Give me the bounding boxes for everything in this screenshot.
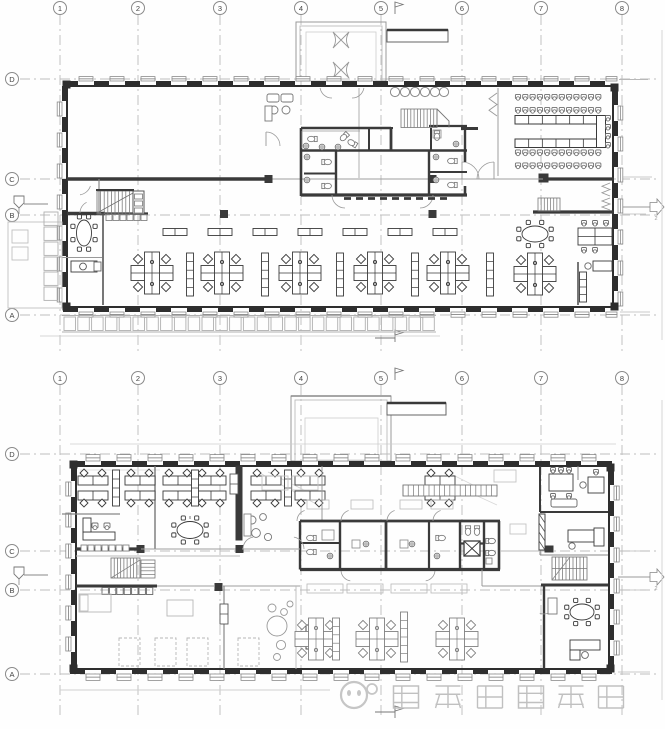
svg-text:6: 6 [460, 4, 464, 13]
svg-text:5: 5 [379, 4, 383, 13]
svg-text:C: C [9, 547, 15, 556]
svg-text:B: B [9, 586, 14, 595]
svg-text:2: 2 [654, 586, 657, 592]
svg-text:6: 6 [460, 374, 464, 383]
svg-text:5: 5 [379, 374, 383, 383]
svg-text:1: 1 [58, 4, 62, 13]
svg-text:8: 8 [620, 4, 624, 13]
svg-text:2: 2 [136, 374, 140, 383]
svg-text:7: 7 [539, 374, 543, 383]
svg-text:1: 1 [58, 374, 62, 383]
svg-text:2: 2 [654, 216, 657, 222]
svg-text:A: A [9, 670, 14, 679]
svg-text:4: 4 [299, 374, 303, 383]
svg-text:4: 4 [299, 4, 303, 13]
svg-text:A: A [9, 311, 14, 320]
svg-text:C: C [9, 175, 15, 184]
svg-text:D: D [9, 450, 15, 459]
svg-text:B: B [9, 211, 14, 220]
svg-text:3: 3 [218, 374, 222, 383]
svg-text:2: 2 [136, 4, 140, 13]
svg-text:8: 8 [620, 374, 624, 383]
svg-text:3: 3 [218, 4, 222, 13]
svg-text:D: D [9, 75, 15, 84]
svg-text:7: 7 [539, 4, 543, 13]
